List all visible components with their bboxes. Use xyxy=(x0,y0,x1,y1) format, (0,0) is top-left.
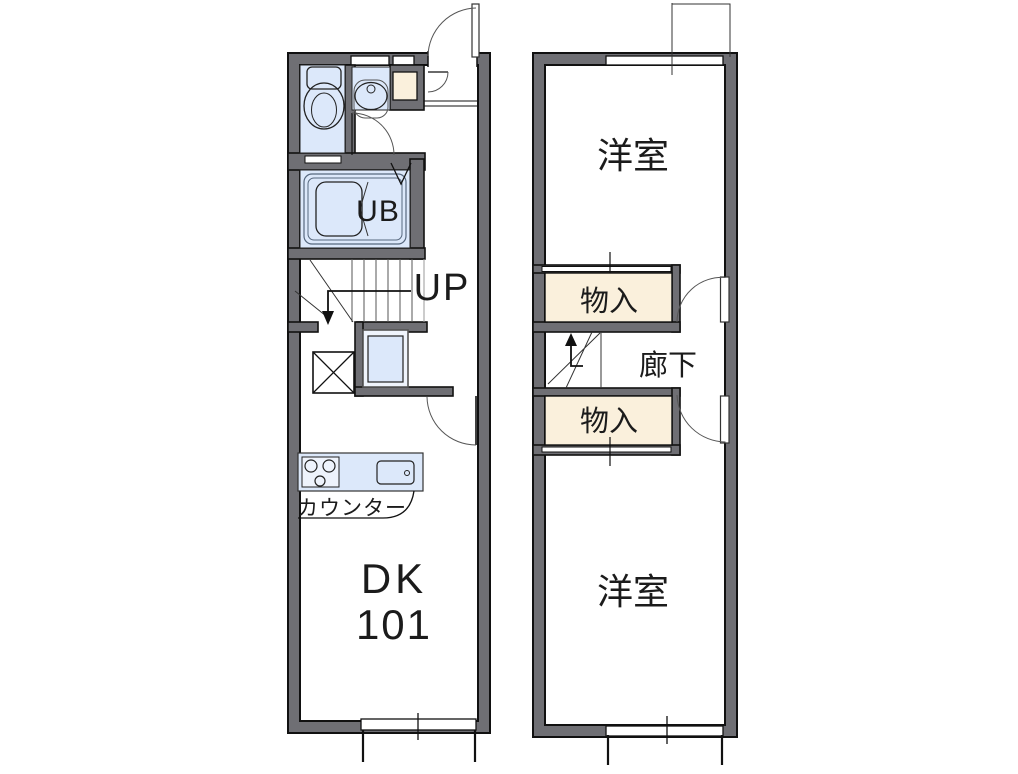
room-bottom-door-arc xyxy=(677,395,726,442)
window-top-2f xyxy=(606,56,723,65)
first-floor-plan: UB UP xyxy=(288,4,490,762)
sliding-opening-closet2 xyxy=(542,447,671,452)
entrance-door-leaf xyxy=(472,4,479,57)
entry-step-lines xyxy=(424,101,477,106)
hall-label: 廊下 xyxy=(639,349,697,382)
dk-door-arc xyxy=(427,397,476,445)
window-bottom-2f xyxy=(606,726,723,736)
stairs-2f xyxy=(548,332,601,388)
floor-plan: UB UP xyxy=(0,0,1018,774)
stairs-1f xyxy=(295,259,424,325)
washing-machine-space xyxy=(363,330,408,387)
room-bottom-door-leaf xyxy=(721,396,730,443)
room-top-door-arc xyxy=(677,277,726,322)
window-top-2 xyxy=(393,56,414,65)
closet-top-label: 物入 xyxy=(580,285,638,318)
room-name-dk: DK xyxy=(361,555,427,602)
entrance-door-arc xyxy=(428,8,476,56)
room-top-label: 洋室 xyxy=(597,135,669,176)
toilet-room xyxy=(300,65,345,153)
floor-plan-drawing: UB UP xyxy=(0,0,1018,774)
stairs-walk-line xyxy=(328,291,411,313)
stairs-arrow-down xyxy=(322,311,334,325)
sliding-opening-closet1 xyxy=(542,267,671,272)
washroom-door-arc xyxy=(352,113,394,155)
second-floor-plan: 物入 廊下 物入 洋室 洋室 xyxy=(533,3,737,765)
terrace-posts-1f xyxy=(363,730,475,762)
refrigerator-space xyxy=(313,352,354,393)
washbasin xyxy=(352,67,390,118)
window-washroom xyxy=(305,156,341,163)
shoe-cabinet xyxy=(393,72,417,100)
stairs-arrow-up xyxy=(565,333,577,346)
stairs-up-label: UP xyxy=(414,267,471,309)
terrace-posts-2f xyxy=(608,735,722,765)
room-number: 101 xyxy=(356,601,432,648)
room-bottom-label: 洋室 xyxy=(597,571,669,612)
unit-bath-label: UB xyxy=(356,195,400,228)
room-top-door-leaf xyxy=(721,277,730,322)
washroom-entry-door-arc xyxy=(428,72,448,92)
window-top-1 xyxy=(351,56,389,65)
closet-bottom-label: 物入 xyxy=(580,405,638,438)
counter-label: カウンター xyxy=(297,497,407,520)
entrance-opening xyxy=(428,51,477,67)
